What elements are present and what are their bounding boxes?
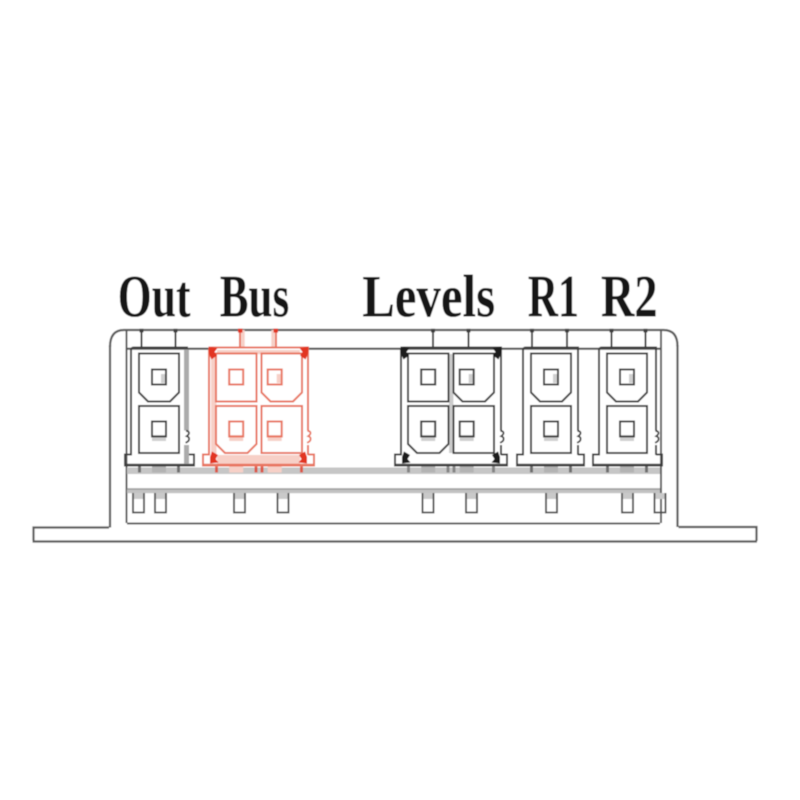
svg-text:R2: R2: [601, 263, 658, 330]
svg-text:Out: Out: [118, 264, 191, 330]
svg-text:Levels: Levels: [362, 263, 495, 330]
svg-text:Bus: Bus: [220, 264, 289, 331]
svg-text:R1: R1: [528, 264, 579, 330]
